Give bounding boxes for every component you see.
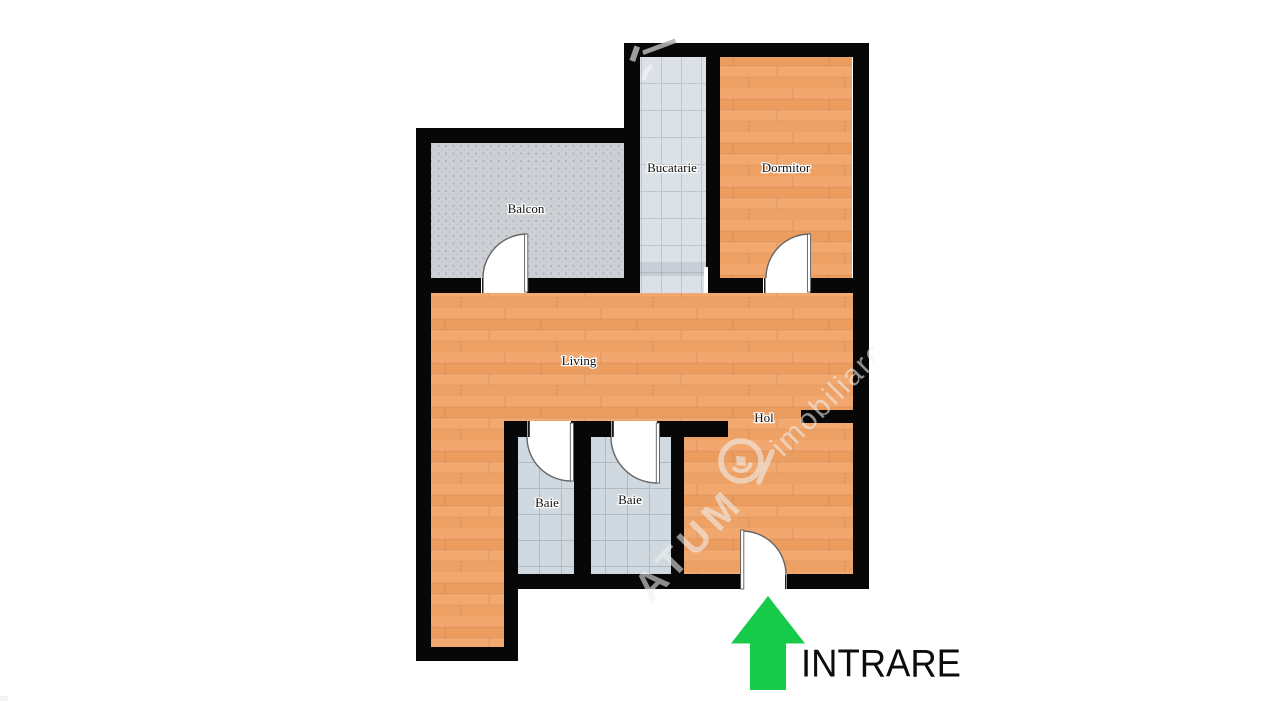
svg-text:Living: Living: [562, 353, 597, 368]
svg-text:Hol: Hol: [754, 410, 774, 425]
svg-text:Bucatarie: Bucatarie: [647, 160, 697, 175]
svg-text:INTRARE: INTRARE: [801, 643, 961, 686]
svg-text:Baie: Baie: [618, 492, 642, 507]
svg-text:Baie: Baie: [535, 495, 559, 510]
svg-text:Dormitor: Dormitor: [762, 160, 811, 175]
svg-text:Balcon: Balcon: [508, 201, 545, 216]
